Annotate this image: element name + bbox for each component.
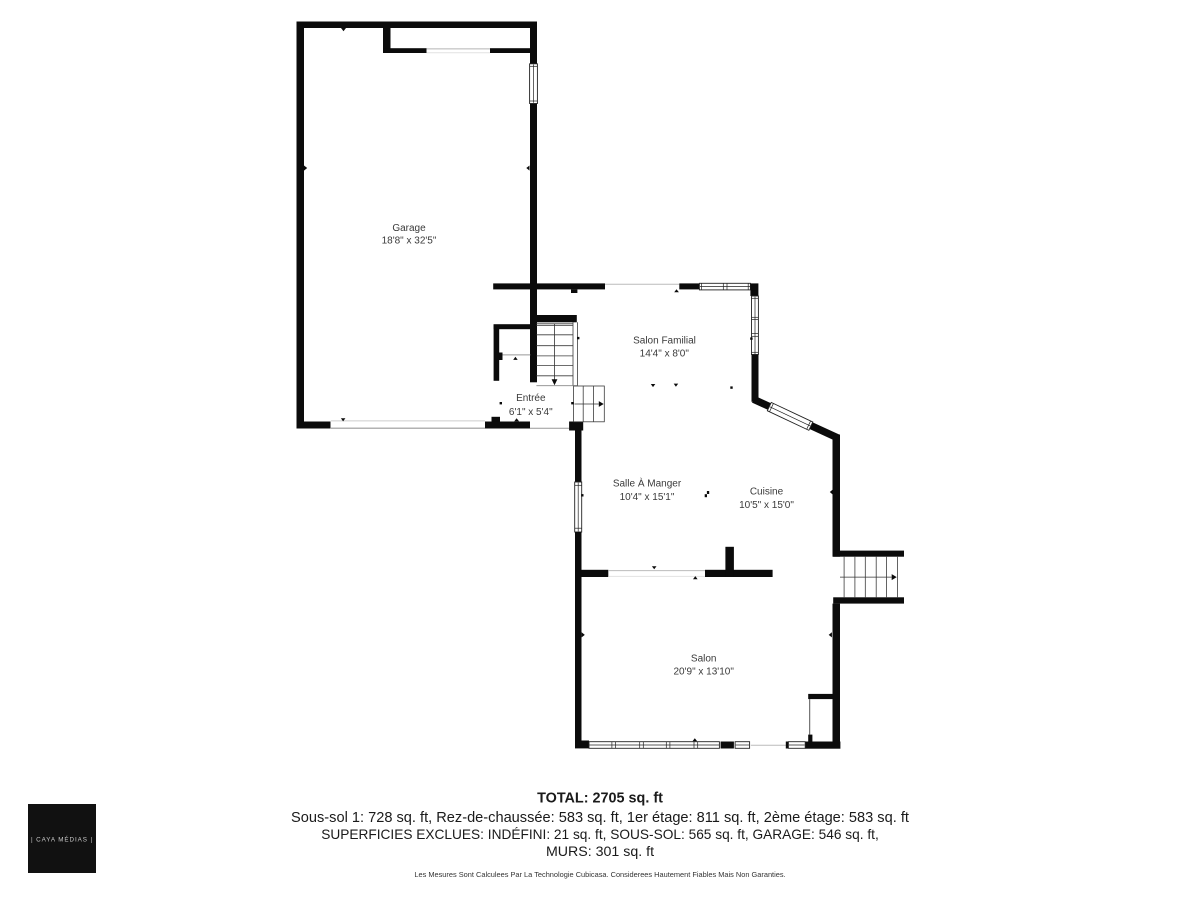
svg-text:Cuisine: Cuisine: [750, 487, 784, 498]
svg-text:Salon: Salon: [691, 653, 717, 664]
svg-text:18'8" x 32'5": 18'8" x 32'5": [382, 235, 437, 246]
svg-text:Les Mesures Sont Calculees Par: Les Mesures Sont Calculees Par La Techno…: [414, 870, 785, 879]
svg-text:10'5" x 15'0": 10'5" x 15'0": [739, 500, 794, 511]
svg-text:Salle À Manger: Salle À Manger: [613, 477, 682, 490]
svg-text:20'9" x 13'10": 20'9" x 13'10": [673, 667, 734, 678]
svg-text:| CAYA MÉDIAS |: | CAYA MÉDIAS |: [31, 835, 93, 844]
svg-text:6'1" x 5'4": 6'1" x 5'4": [509, 407, 553, 418]
svg-text:Garage: Garage: [392, 223, 426, 234]
svg-text:14'4" x 8'0": 14'4" x 8'0": [640, 348, 690, 359]
svg-text:SUPERFICIES EXCLUES: INDÉFINI:: SUPERFICIES EXCLUES: INDÉFINI: 21 sq. ft…: [321, 827, 879, 842]
svg-text:Sous-sol 1: 728 sq. ft, Rez-de: Sous-sol 1: 728 sq. ft, Rez-de-chaussée:…: [291, 810, 909, 826]
svg-text:TOTAL: 2705 sq. ft: TOTAL: 2705 sq. ft: [537, 791, 663, 807]
svg-text:MURS: 301 sq. ft: MURS: 301 sq. ft: [546, 844, 654, 860]
svg-text:Salon Familial: Salon Familial: [633, 336, 696, 347]
svg-text:Entrée: Entrée: [516, 393, 546, 404]
svg-text:10'4" x 15'1": 10'4" x 15'1": [620, 492, 675, 503]
